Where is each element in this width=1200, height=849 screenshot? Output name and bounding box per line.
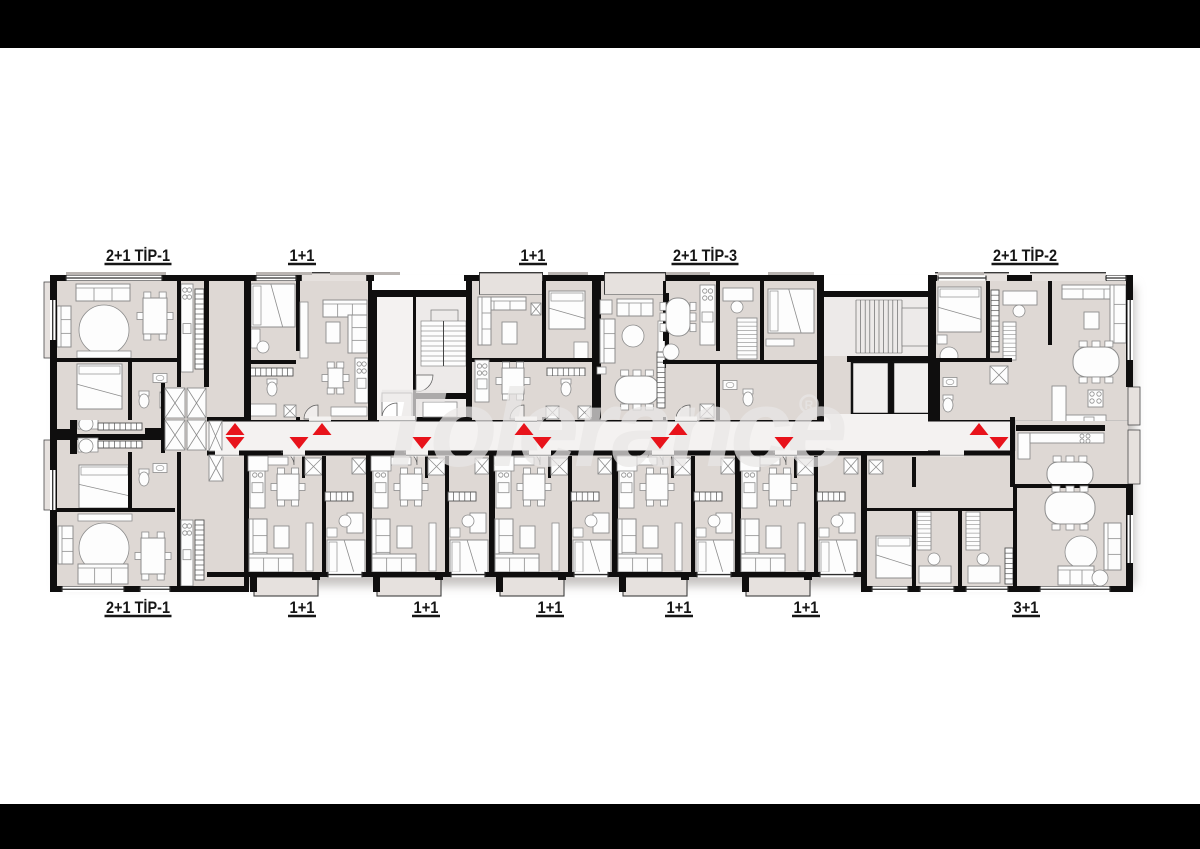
svg-text:2+1 TİP-3: 2+1 TİP-3 — [673, 247, 737, 265]
svg-text:3+1: 3+1 — [1014, 599, 1039, 617]
svg-text:1+1: 1+1 — [521, 247, 546, 265]
svg-text:2+1 TİP-2: 2+1 TİP-2 — [993, 247, 1057, 265]
svg-text:1+1: 1+1 — [414, 599, 439, 617]
svg-text:1+1: 1+1 — [290, 599, 315, 617]
svg-text:R: R — [805, 398, 814, 412]
svg-text:1+1: 1+1 — [794, 599, 819, 617]
svg-text:1+1: 1+1 — [667, 599, 692, 617]
svg-text:1+1: 1+1 — [538, 599, 563, 617]
svg-text:1+1: 1+1 — [290, 247, 315, 265]
svg-text:2+1 TİP-1: 2+1 TİP-1 — [106, 247, 170, 265]
svg-text:2+1 TİP-1: 2+1 TİP-1 — [106, 599, 170, 617]
svg-text:Tolerance: Tolerance — [372, 367, 845, 490]
